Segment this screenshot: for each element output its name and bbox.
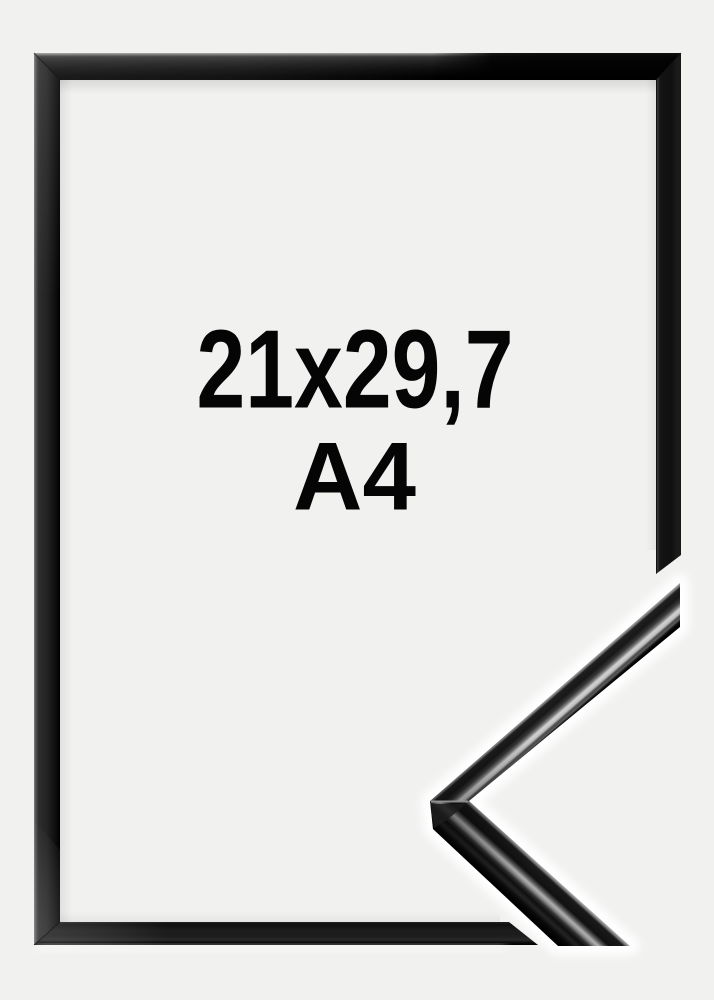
svg-text:21x29,7: 21x29,7 bbox=[197, 308, 514, 432]
svg-text:A4: A4 bbox=[293, 424, 416, 531]
